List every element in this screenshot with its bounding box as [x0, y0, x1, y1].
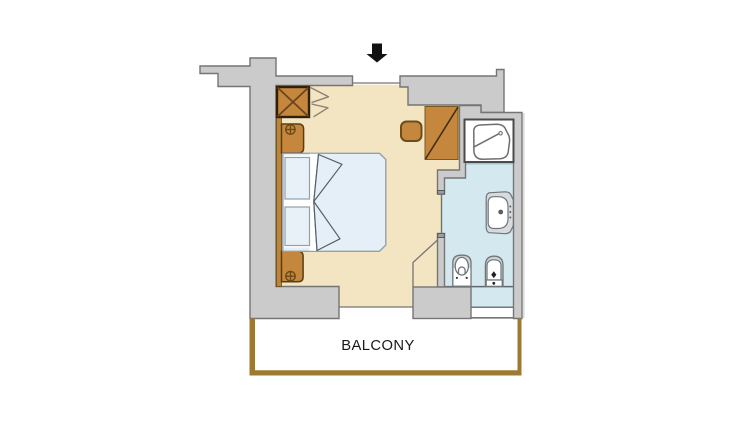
svg-text:BALCONY: BALCONY	[341, 338, 415, 354]
